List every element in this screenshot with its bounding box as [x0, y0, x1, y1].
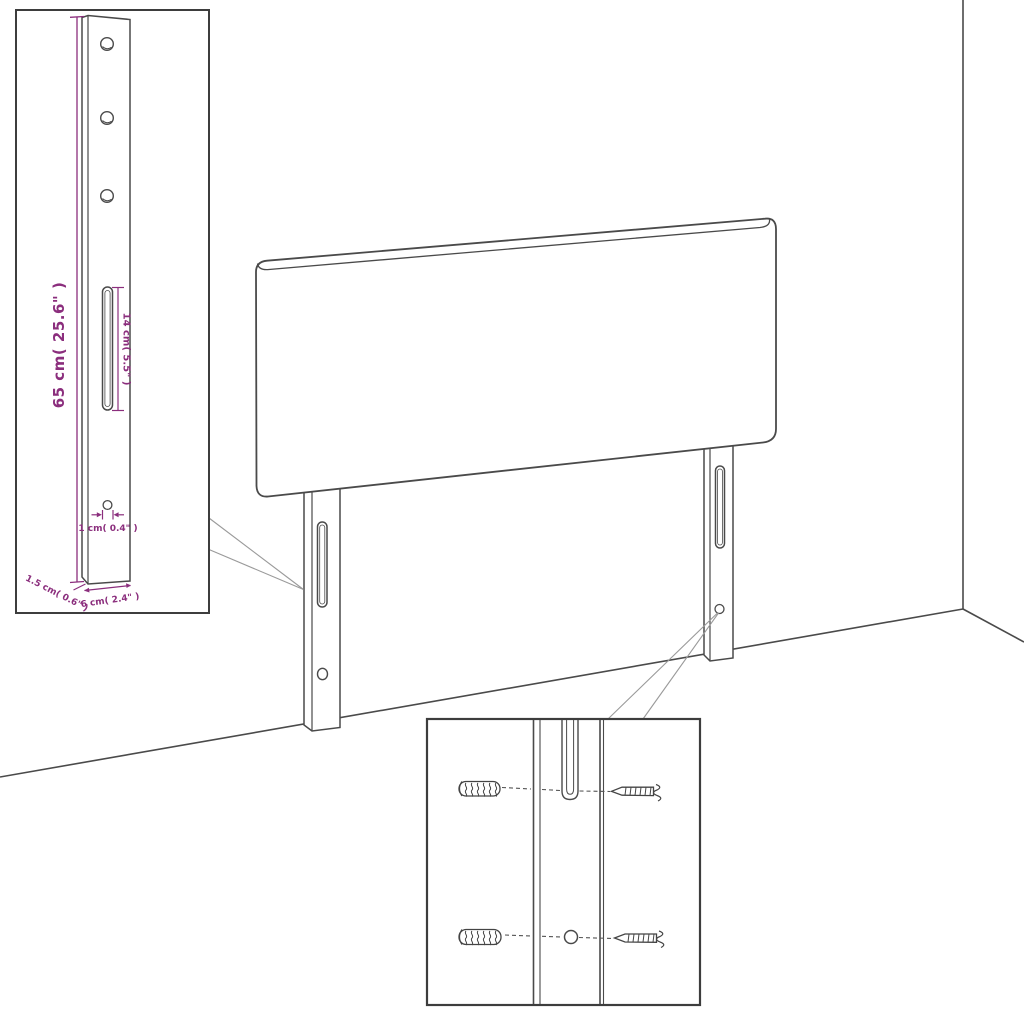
- detail-leg-bar: [82, 16, 130, 585]
- dim-height-label: 65 cm( 25.6" ): [50, 282, 68, 409]
- bar-small-hole: [103, 501, 112, 510]
- fixings-callout-leaders: [608, 613, 719, 719]
- floor-line-right: [963, 609, 1024, 642]
- inset-border: [427, 719, 700, 1005]
- headboard-panel: [256, 219, 776, 497]
- leg-screw-hole: [318, 668, 328, 679]
- dim-slot-label: 14 cm( 5.5" ): [121, 313, 132, 386]
- headboard-leg-right: [704, 429, 733, 661]
- leg-screw-hole: [715, 605, 724, 614]
- dashed-alignment-line: [542, 936, 563, 937]
- leg-slot-inner: [320, 525, 325, 604]
- fixings-inset: [427, 719, 700, 1005]
- leg-slot-inner: [718, 469, 723, 545]
- dim-hole-label: 1 cm( 0.4" ): [78, 524, 137, 534]
- callout-leader-line: [608, 613, 718, 719]
- callout-leader-line: [643, 613, 719, 719]
- leg-detail-callout-leaders: [209, 518, 304, 590]
- callout-leader-line: [209, 550, 304, 590]
- callout-leader-line: [209, 518, 304, 590]
- panel-outline: [256, 219, 776, 497]
- headboard-leg-left: [304, 465, 340, 731]
- screw-body: [615, 934, 657, 942]
- leg-detail-inset: 65 cm( 25.6" ) 14 cm( 5.5" ) 1 cm( 0.4" …: [16, 10, 209, 614]
- bar-slot-inner: [105, 291, 110, 407]
- dim-tick: [70, 17, 84, 18]
- diagram-canvas: 65 cm( 25.6" ) 14 cm( 5.5" ) 1 cm( 0.4" …: [0, 0, 1024, 1024]
